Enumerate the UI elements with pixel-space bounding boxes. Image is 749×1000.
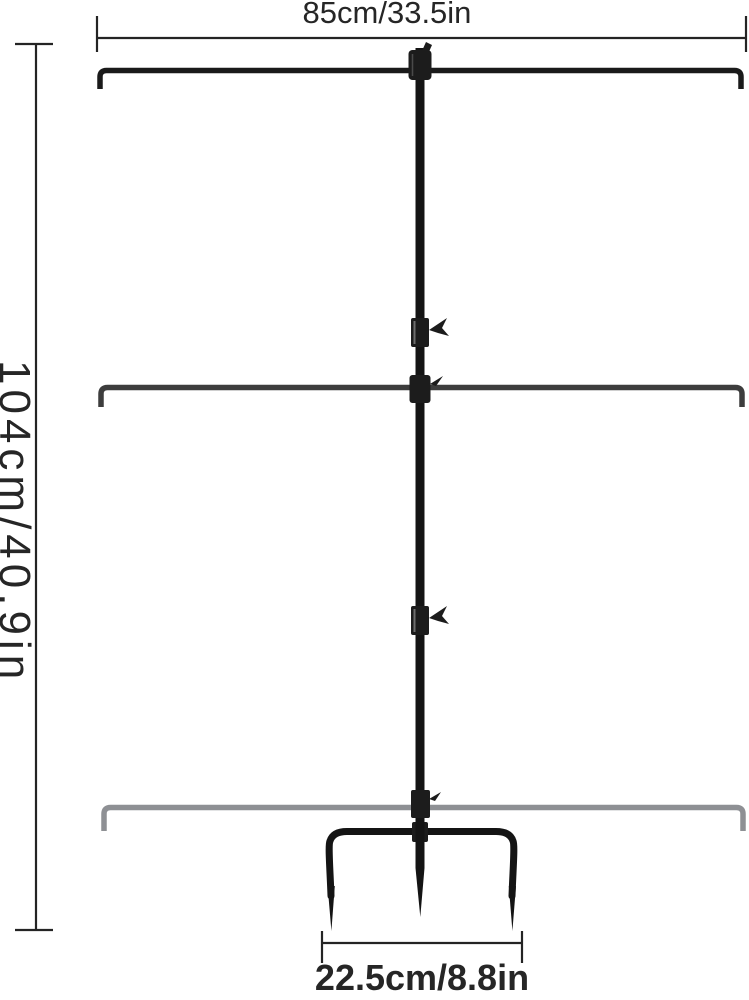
ground-stake-right-spike-tip [509, 886, 516, 931]
stake-width-dimension-label: 22.5cm/8.8in [262, 960, 582, 996]
product-dimension-diagram: 85cm/33.5in 104cm/40.9in 22.5cm/8.8in [0, 0, 749, 1000]
upper-adjustment-knob [411, 318, 449, 347]
lower-adjustment-knob [411, 606, 449, 635]
lower-wing-knob [429, 606, 449, 624]
bottom-crossbar-clamp-pin [429, 792, 441, 801]
upper-wing-knob [429, 318, 449, 336]
bottom-crossbar-clamp-body [411, 790, 430, 818]
middle-crossbar-clamp-body [410, 375, 431, 403]
center-pole [416, 48, 425, 917]
bottom-crossbar-clamp [411, 790, 441, 818]
middle-crossbar-clamp-pin [430, 376, 443, 386]
stand-illustration [0, 0, 749, 1000]
width-dimension-label: 85cm/33.5in [237, 0, 537, 28]
height-dimension-label: 104cm/40.9in [0, 360, 36, 684]
ground-stake-left-spike-tip [328, 886, 335, 931]
pole-top-clamp [409, 42, 433, 80]
